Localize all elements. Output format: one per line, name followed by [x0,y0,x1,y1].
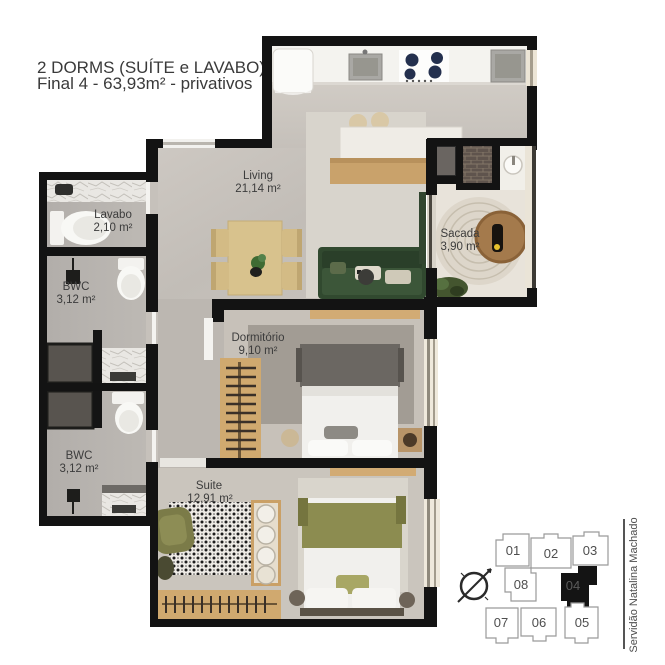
svg-text:21,14 m²: 21,14 m² [235,183,281,195]
svg-text:03: 03 [583,543,597,558]
svg-text:06: 06 [532,615,546,630]
svg-text:2,10 m²: 2,10 m² [94,222,133,234]
svg-text:3,12 m²: 3,12 m² [60,463,99,475]
svg-text:Living: Living [243,170,273,182]
svg-text:01: 01 [506,543,520,558]
svg-text:12,91 m²: 12,91 m² [187,493,233,505]
svg-text:Dormitório: Dormitório [231,332,284,344]
svg-text:Lavabo: Lavabo [94,209,132,221]
svg-text:Servidão Natalina Machado: Servidão Natalina Machado [628,517,640,652]
svg-text:02: 02 [544,546,558,561]
svg-text:BWC: BWC [63,281,90,293]
svg-text:Sacada: Sacada [440,228,480,240]
svg-text:Suite: Suite [196,480,222,492]
svg-text:9,10 m²: 9,10 m² [239,345,278,357]
svg-text:3,12 m²: 3,12 m² [57,294,96,306]
svg-text:3,90 m²: 3,90 m² [441,241,480,253]
svg-text:04: 04 [566,578,580,593]
svg-text:05: 05 [575,615,589,630]
svg-text:BWC: BWC [66,450,93,462]
svg-text:08: 08 [514,577,528,592]
svg-text:07: 07 [494,615,508,630]
svg-text:Final 4 - 63,93m² - privativos: Final 4 - 63,93m² - privativos [37,74,252,93]
